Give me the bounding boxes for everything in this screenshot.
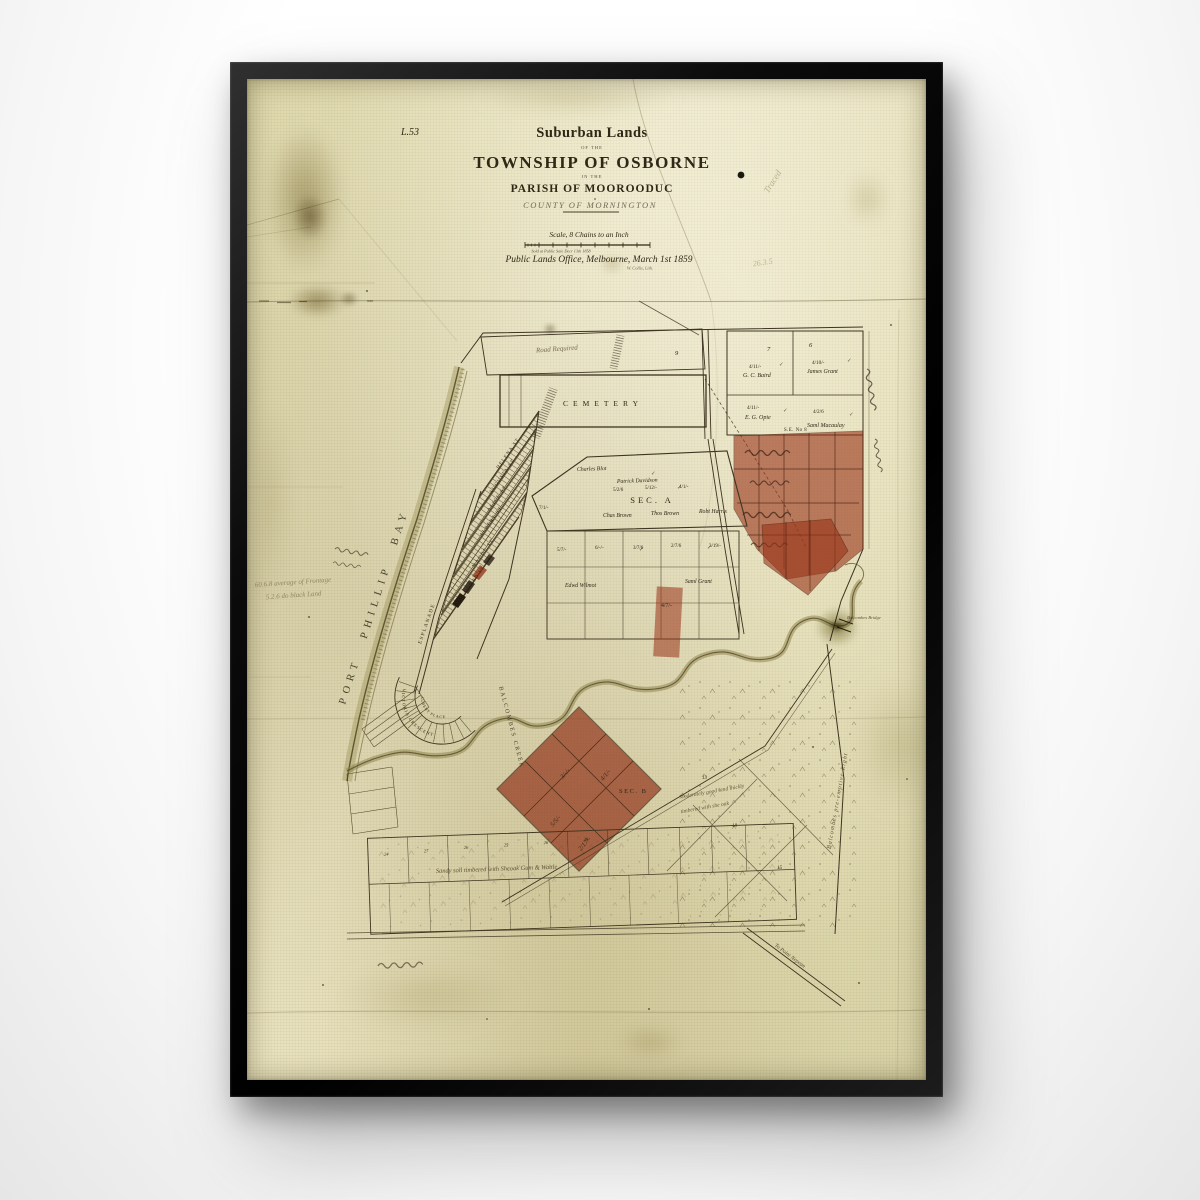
price: 5/12/- — [645, 486, 657, 491]
map-sheet: L.53 Suburban Lands OF THE TOWNSHIP OF O… — [247, 79, 926, 1080]
coastline — [347, 367, 467, 781]
owner-name: Thos Brown — [651, 511, 679, 517]
price: 2/7/6 — [671, 544, 682, 549]
lot-number: 7 — [767, 346, 771, 353]
lot-number: 9 — [675, 350, 679, 357]
title-parish: PARISH OF MOOROODUC — [511, 183, 674, 195]
owner-name: Saml Macaulay — [807, 423, 845, 429]
nepean-road: To Point Nepean — [743, 928, 845, 1006]
price: 4/1/- — [679, 485, 689, 490]
owner-name: Patrick Davidson — [616, 478, 658, 485]
frontage-note-line2: 5.2.6 do black Land — [265, 589, 322, 601]
price: 4/2/6 — [813, 409, 824, 415]
title-in-the: IN THE — [582, 174, 603, 179]
owner-name: Edwd Wilmot — [564, 583, 596, 589]
ink-dot — [738, 172, 745, 179]
price: 6/-/- — [595, 546, 604, 551]
price: 3/7/6 — [633, 546, 644, 551]
frontage-note: 60.6.8 average of Frontage 5.2.6 do blac… — [255, 576, 333, 602]
lith-credit: W. Collis, Lith. — [627, 266, 653, 272]
se-no8-label: S.E. No 8 — [784, 428, 807, 433]
pencil-note-traced: Traced — [762, 168, 784, 195]
price: 4/7/- — [661, 603, 672, 609]
scale-caption: Scale, 8 Chains to an Inch — [549, 230, 628, 239]
title-township: TOWNSHIP OF OSBORNE — [473, 153, 710, 172]
owner-names-ne: G. C. Baird James Grant E. G. Opie Saml … — [743, 369, 845, 429]
price: 4/11/- — [747, 405, 759, 411]
price: 5/2/6 — [613, 488, 624, 493]
road-required-note: Road Required — [535, 344, 579, 355]
price: 4/11/- — [749, 364, 761, 370]
owner-name: G. C. Baird — [743, 373, 772, 379]
check-mark: ✓ — [651, 471, 656, 477]
bottom-strip: 24 27 26 25 26 30 Sandy soil timbered wi… — [367, 823, 797, 968]
red-parcel-near-bridge — [762, 519, 848, 595]
check-mark: ✓ — [783, 408, 788, 414]
title-script: Suburban Lands — [536, 125, 647, 141]
sheet-ref: L.53 — [400, 127, 419, 138]
picture-frame: L.53 Suburban Lands OF THE TOWNSHIP OF O… — [230, 62, 943, 1097]
pencil-note-figures: 26.3.5 — [752, 257, 773, 269]
check-mark: ✓ — [847, 358, 852, 364]
product-photo-backdrop: { "artwork": { "sheet_ref": "L.53", "tit… — [0, 0, 1200, 1200]
street-albert-place: ALBERT PLACE — [414, 694, 449, 724]
title-of-the: OF THE — [581, 145, 603, 150]
lot-number: 6 — [809, 342, 813, 349]
check-mark: ✓ — [779, 362, 784, 368]
price: 5/7/- — [557, 548, 567, 553]
creek-label: BALCOMBES CREEK — [497, 686, 525, 770]
owner-name: Robt Harris — [698, 509, 728, 515]
sec-a-label: SEC. A — [630, 495, 674, 505]
township-street-grid: HELENA ST AUGUSTA ST ALICE ST ALBERT ST … — [347, 411, 539, 834]
owner-name: James Grant — [807, 369, 838, 375]
title-county: COUNTY OF MORNINGTON — [523, 200, 657, 210]
owner-name: Charles Blot — [577, 466, 607, 473]
owner-name: Chas Brown — [603, 513, 632, 519]
check-mark: ✓ — [849, 412, 854, 418]
price: 3/19/- — [709, 544, 721, 549]
scale-bar — [525, 242, 650, 248]
title-block: L.53 Suburban Lands OF THE TOWNSHIP OF O… — [400, 125, 784, 272]
sold-strip-red — [653, 586, 683, 657]
bridge-label: Balcombes Bridge — [847, 615, 881, 620]
lot-number: 13 — [702, 776, 708, 781]
lot-number: 18 — [732, 824, 738, 829]
parcel-numbers-top: 9 7 6 — [675, 342, 813, 357]
price: 7/1/- — [539, 506, 549, 511]
nepean-road-label: To Point Nepean — [773, 943, 806, 970]
frontage-note-line1: 60.6.8 average of Frontage — [255, 576, 332, 589]
svg-text:ALBERT PLACE: ALBERT PLACE — [414, 694, 449, 724]
price: 4/10/- — [812, 360, 825, 366]
owner-name: Saml Grant — [685, 579, 712, 585]
owner-name: E. G. Opie — [744, 415, 771, 421]
office-line: Public Lands Office, Melbourne, March 1s… — [505, 254, 693, 265]
map-drawing: L.53 Suburban Lands OF THE TOWNSHIP OF O… — [247, 79, 926, 1080]
cemetery-label: CEMETERY — [563, 399, 643, 408]
sale-note: Sold at Public Sale Decr 13th 1858 — [531, 249, 591, 254]
sec-b-label: SEC. B — [619, 788, 648, 795]
